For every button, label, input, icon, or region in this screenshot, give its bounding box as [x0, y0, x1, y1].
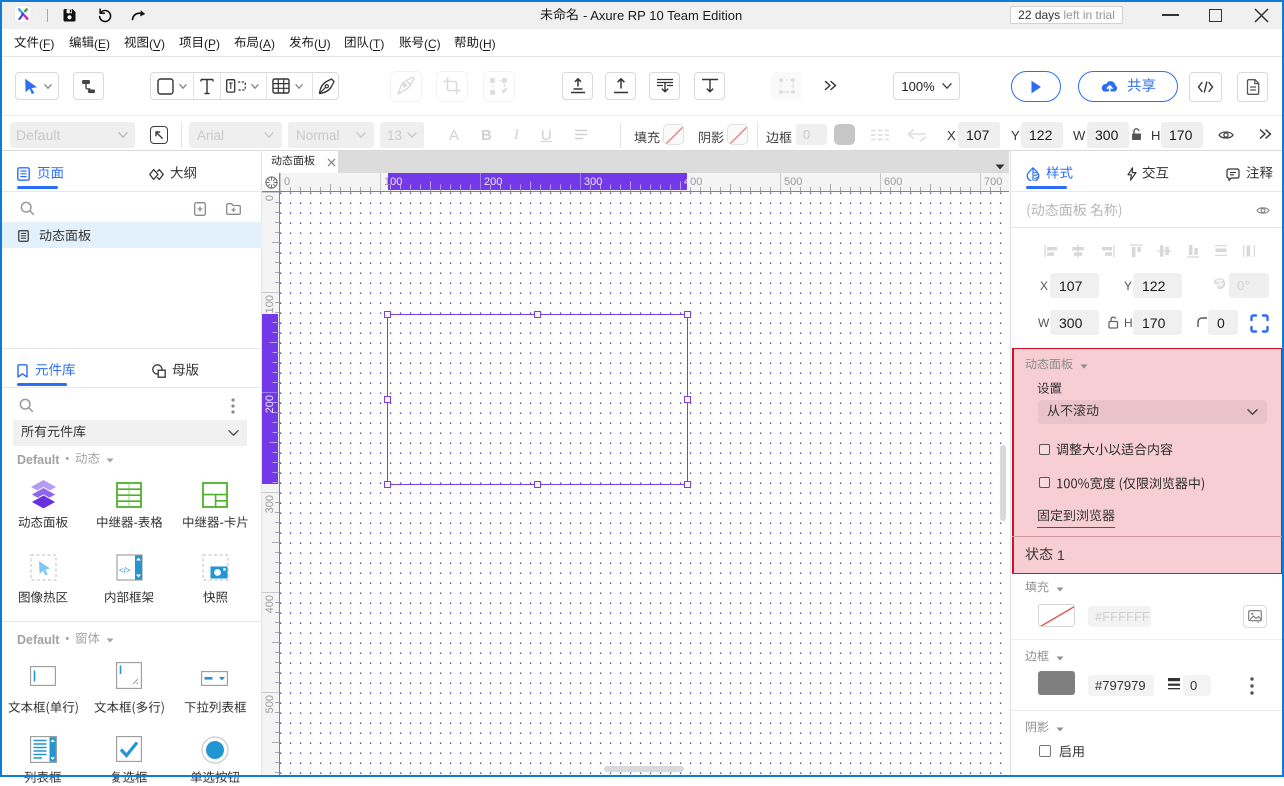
svg-text:</>: </>: [119, 566, 131, 575]
